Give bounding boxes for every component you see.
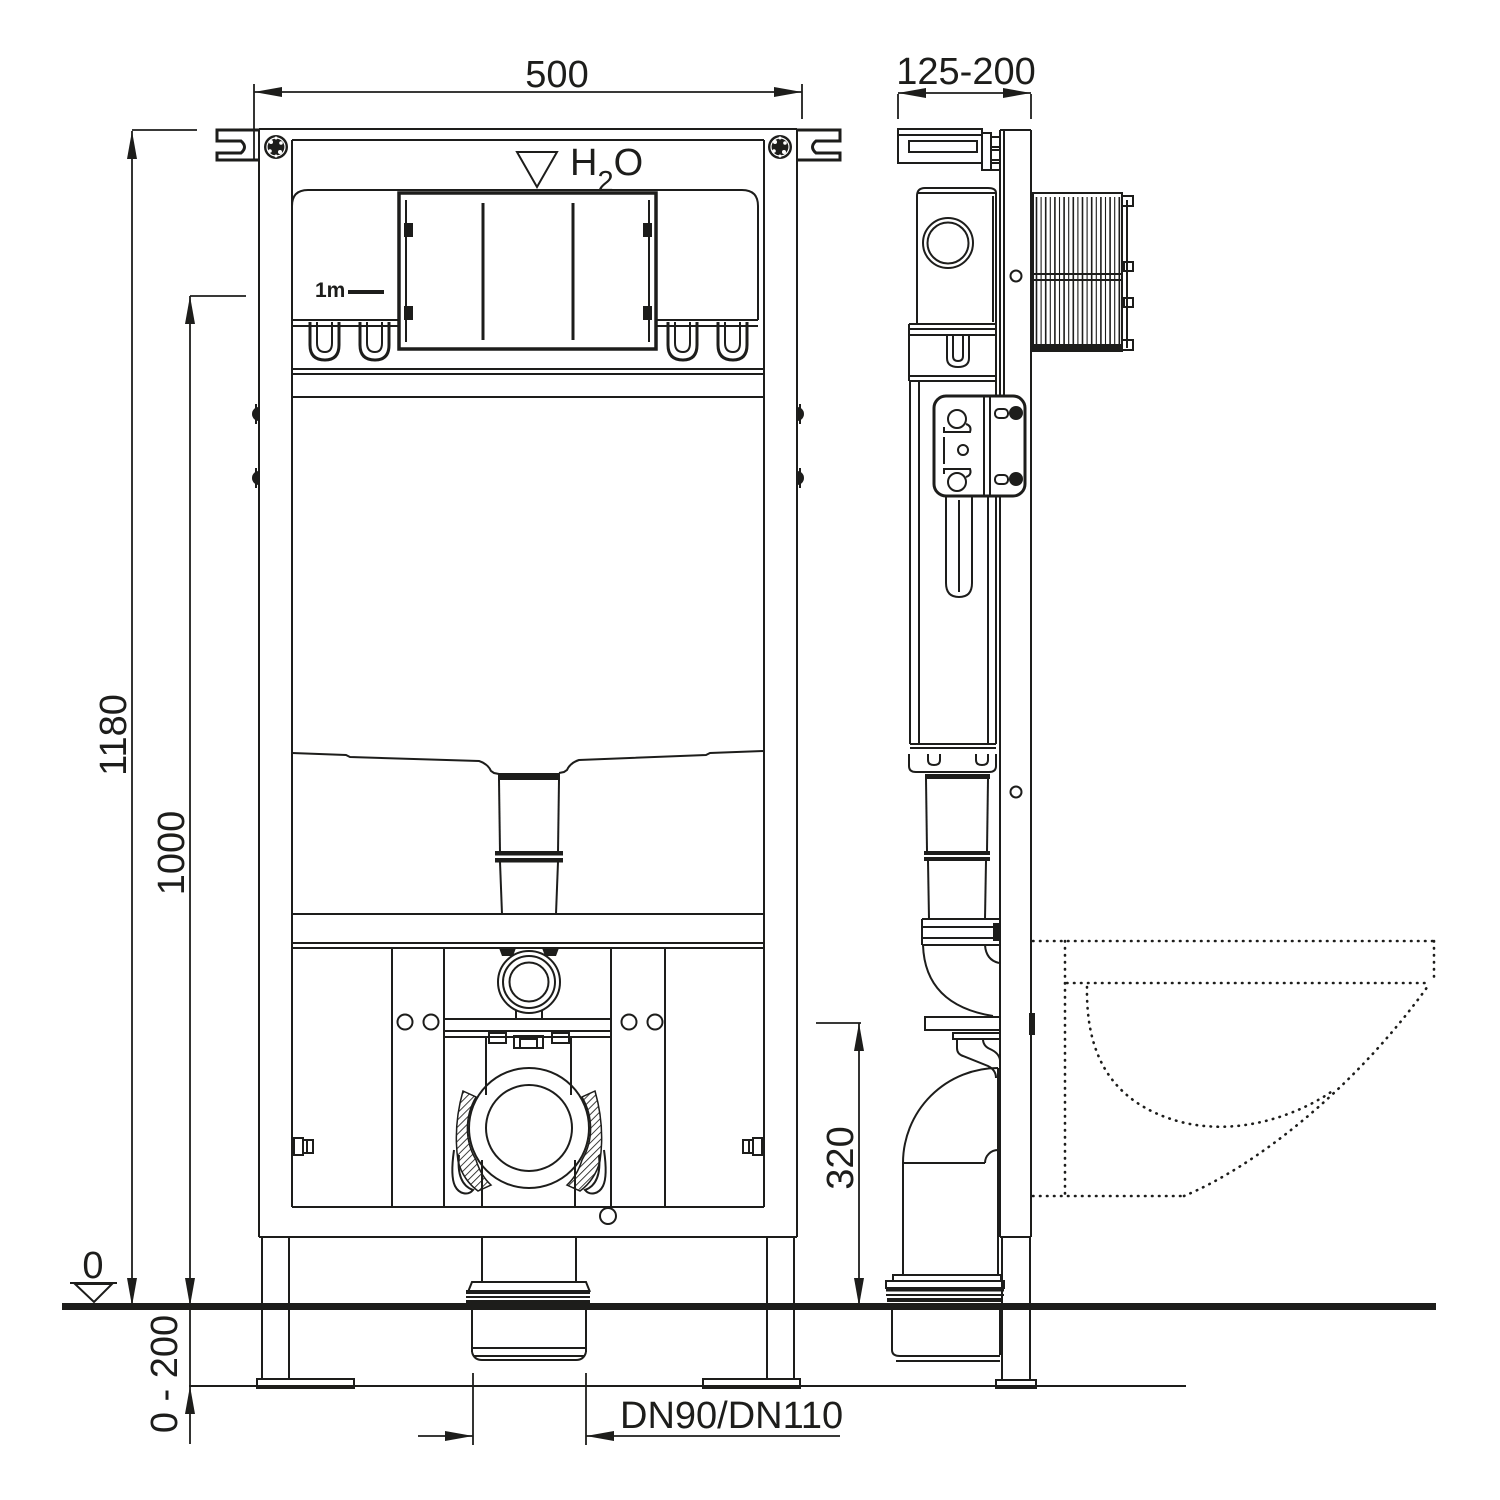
svg-text:125-200: 125-200 [896,51,1035,93]
svg-text:500: 500 [525,54,588,96]
svg-text:0 - 200: 0 - 200 [144,1315,186,1433]
svg-text:320: 320 [820,1126,862,1189]
svg-text:1000: 1000 [151,811,193,896]
svg-text:1180: 1180 [93,694,135,776]
svg-text:DN90/DN110: DN90/DN110 [620,1395,843,1437]
svg-text:0: 0 [82,1245,103,1287]
svg-text:1m: 1m [315,279,345,302]
